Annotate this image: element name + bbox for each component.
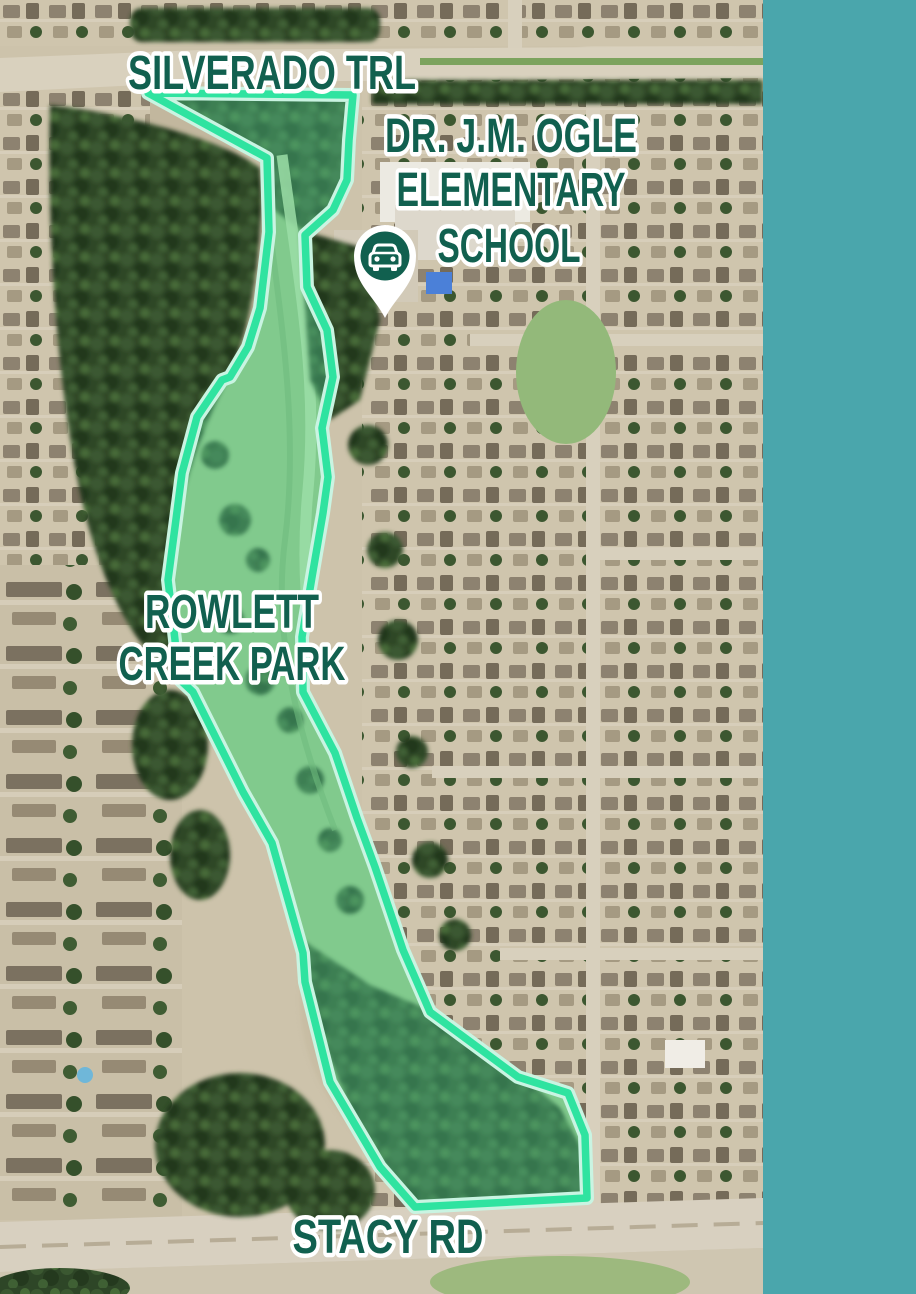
forest-top-strip <box>130 8 380 42</box>
pool <box>77 1067 93 1083</box>
label-silverado-trl: SILVERADO TRL <box>128 47 416 100</box>
residential-top <box>0 0 763 46</box>
teal-sidebar-panel <box>763 0 916 1294</box>
white-roof-building <box>665 1040 705 1068</box>
label-school-line2: ELEMENTARY <box>397 164 626 217</box>
label-school-line1: DR. J.M. OGLE <box>385 110 637 163</box>
label-stacy-rd: STACY RD <box>293 1211 484 1264</box>
label-school-line3: SCHOOL <box>438 220 581 273</box>
playground-canopy <box>426 272 452 294</box>
label-park-line2: CREEK PARK <box>119 638 346 691</box>
map-area: SILVERADO TRL DR. J.M. OGLE ELEMENTARY S… <box>0 0 820 1294</box>
school-field <box>516 300 616 444</box>
satellite-map-image: SILVERADO TRL DR. J.M. OGLE ELEMENTARY S… <box>0 0 916 1294</box>
label-park-line1: ROWLETT <box>145 586 319 639</box>
pin-inner-circle <box>361 232 410 281</box>
park-map-graphic: SILVERADO TRL DR. J.M. OGLE ELEMENTARY S… <box>0 0 916 1294</box>
tree-row-below-road <box>372 80 763 104</box>
label-rowlett-creek-park: ROWLETT CREEK PARK <box>119 586 346 691</box>
